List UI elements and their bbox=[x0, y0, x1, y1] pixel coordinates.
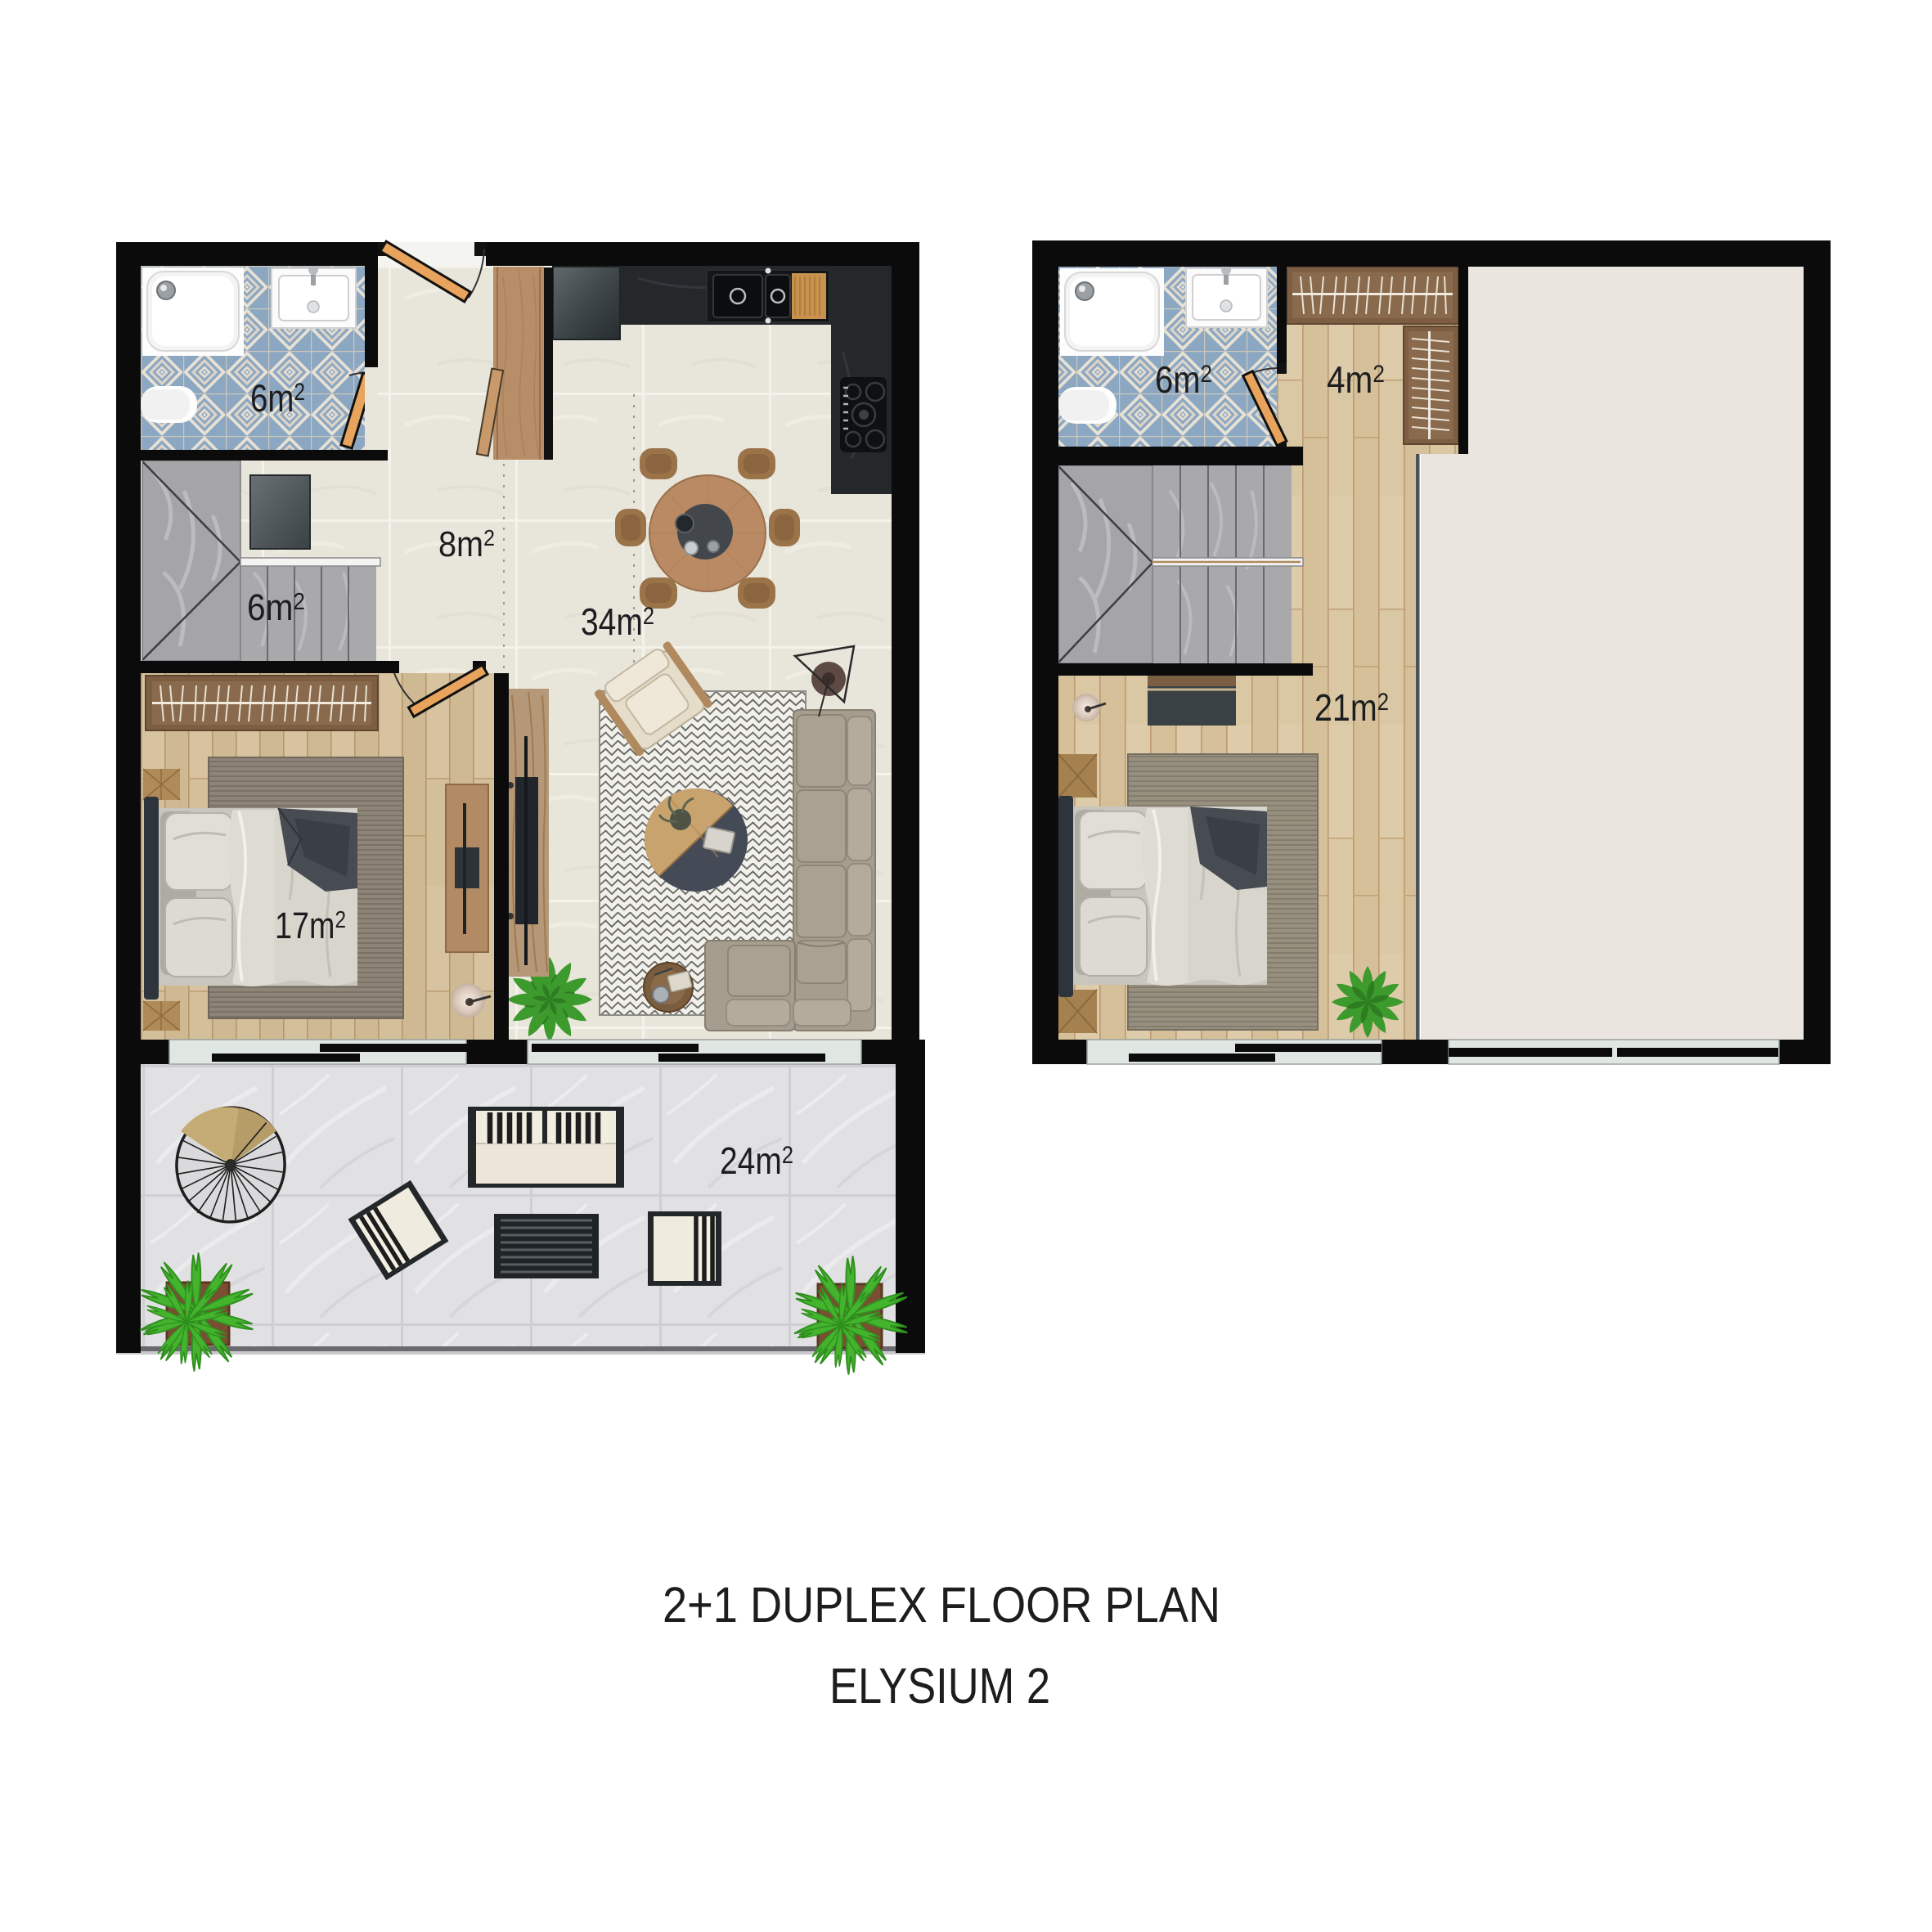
svg-text:ELYSIUM 2: ELYSIUM 2 bbox=[829, 1658, 1050, 1714]
svg-text:2+1 DUPLEX FLOOR PLAN: 2+1 DUPLEX FLOOR PLAN bbox=[663, 1577, 1220, 1633]
